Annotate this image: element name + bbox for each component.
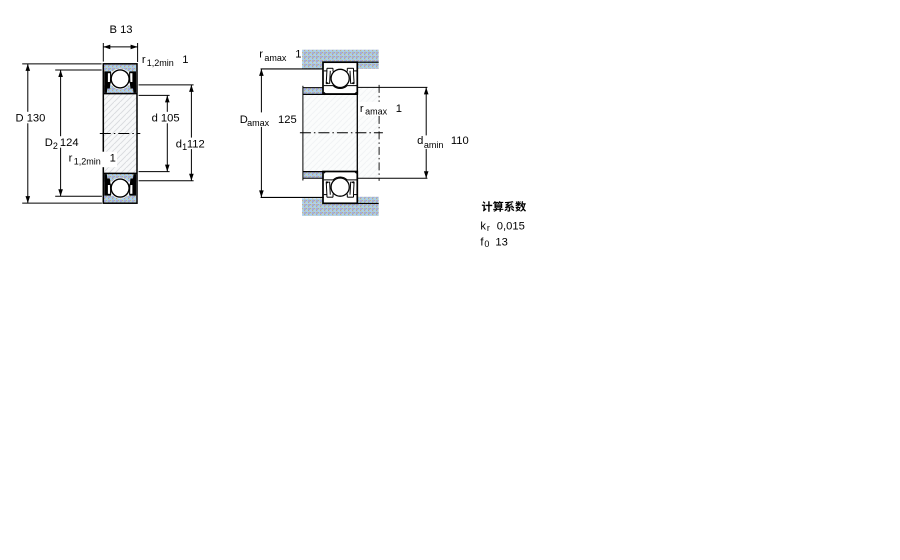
svg-text:r: r xyxy=(259,49,263,61)
svg-text:1: 1 xyxy=(110,152,116,164)
svg-text:r: r xyxy=(142,54,146,66)
svg-text:r: r xyxy=(69,152,73,164)
svg-text:r: r xyxy=(360,103,364,115)
svg-text:1: 1 xyxy=(295,49,301,61)
svg-text:110: 110 xyxy=(451,135,469,147)
svg-text:amax: amax xyxy=(247,118,270,128)
svg-text:124: 124 xyxy=(60,137,79,149)
svg-text:0,015: 0,015 xyxy=(497,220,525,232)
svg-text:1,2min: 1,2min xyxy=(147,58,174,68)
svg-text:B 13: B 13 xyxy=(110,24,133,36)
svg-text:r: r xyxy=(487,223,490,233)
svg-text:d: d xyxy=(417,135,423,147)
svg-text:1,2min: 1,2min xyxy=(74,156,101,166)
svg-text:1: 1 xyxy=(396,103,402,115)
svg-text:13: 13 xyxy=(495,236,507,248)
svg-text:0: 0 xyxy=(484,239,489,249)
svg-text:amax: amax xyxy=(264,53,287,63)
svg-text:amin: amin xyxy=(424,140,444,150)
svg-text:112: 112 xyxy=(187,138,205,150)
svg-text:d: d xyxy=(176,138,182,150)
svg-text:amax: amax xyxy=(365,107,388,117)
svg-text:D: D xyxy=(45,137,53,149)
svg-text:125: 125 xyxy=(278,114,297,126)
svg-text:k: k xyxy=(480,220,486,232)
svg-text:D 130: D 130 xyxy=(16,113,46,125)
svg-text:1: 1 xyxy=(182,54,188,66)
svg-text:2: 2 xyxy=(53,141,58,151)
svg-text:d 105: d 105 xyxy=(152,113,180,125)
